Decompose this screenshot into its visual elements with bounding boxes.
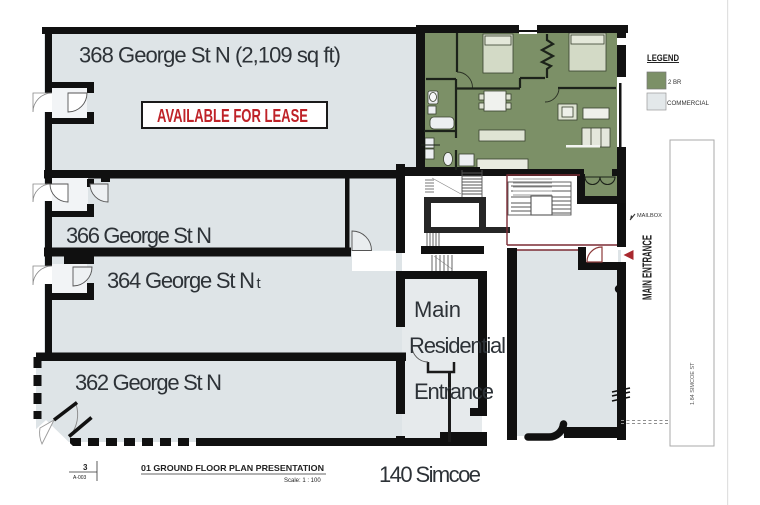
svg-text:COMMERCIAL: COMMERCIAL [667, 100, 709, 107]
svg-text:2 BR: 2 BR [668, 80, 682, 86]
svg-text:Entrance: Entrance [414, 379, 494, 404]
svg-text:LEGEND: LEGEND [647, 53, 679, 64]
svg-text:MAILBOX: MAILBOX [637, 213, 662, 219]
svg-text:366 George St N: 366 George St N [66, 223, 212, 248]
svg-text:01 GROUND FLOOR PLAN PRESENTAT: 01 GROUND FLOOR PLAN PRESENTATION [141, 463, 324, 473]
svg-text:1.84 SIMCOE ST: 1.84 SIMCOE ST [690, 362, 696, 405]
svg-text:362 George St N: 362 George St N [75, 370, 222, 395]
svg-text:AVAILABLE FOR LEASE: AVAILABLE FOR LEASE [157, 106, 308, 126]
svg-text:Residential: Residential [409, 333, 506, 358]
svg-text:Main: Main [414, 297, 461, 322]
svg-text:Scale: 1 : 100: Scale: 1 : 100 [284, 478, 321, 484]
svg-text:3: 3 [83, 463, 88, 472]
svg-text:A-003: A-003 [73, 475, 87, 481]
svg-text:368 George St N (2,109 sq ft): 368 George St N (2,109 sq ft) [79, 43, 341, 68]
svg-text:MAIN ENTRANCE: MAIN ENTRANCE [641, 235, 655, 300]
svg-text:140 Simcoe: 140 Simcoe [379, 462, 481, 487]
svg-text:364 George St N: 364 George St N [107, 268, 255, 293]
